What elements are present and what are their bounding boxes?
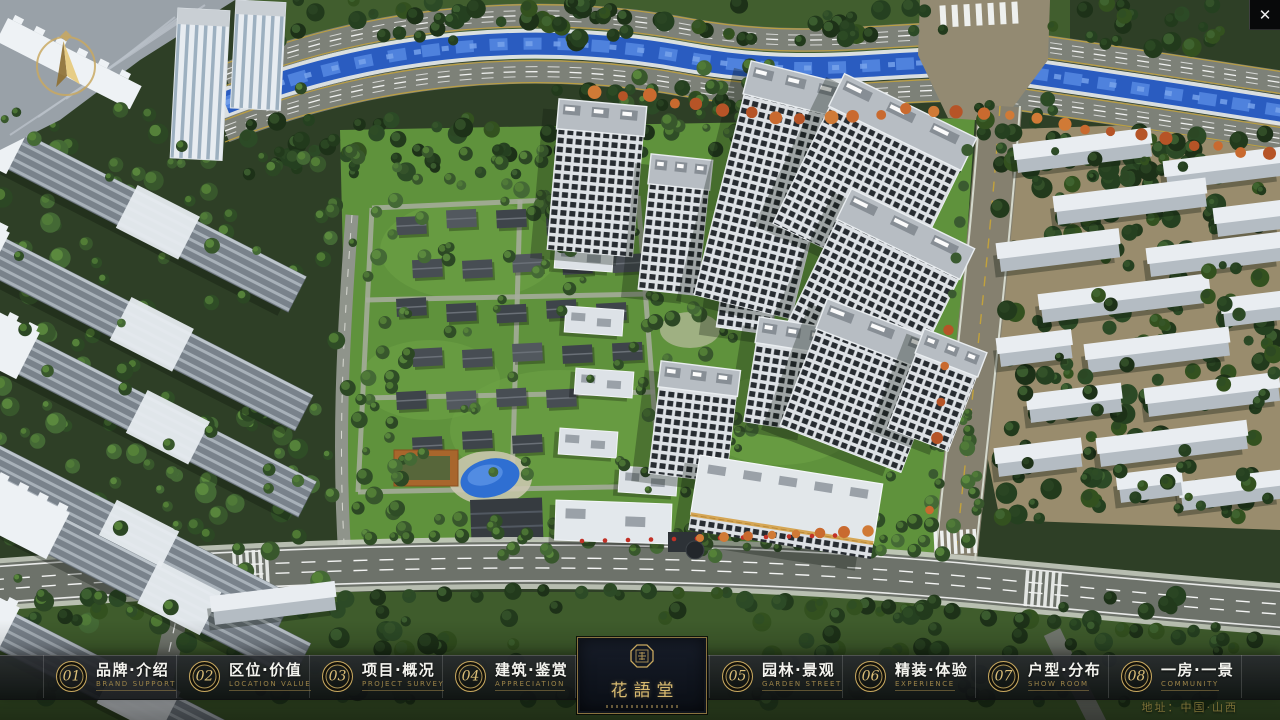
nav-item-number-badge: 08: [1121, 661, 1152, 692]
nav-item-number-badge: 04: [455, 661, 486, 692]
nav-item-architecture-appreciation[interactable]: 04建筑·鉴赏APPRECIATION: [442, 655, 575, 698]
close-button[interactable]: ✕: [1249, 0, 1280, 30]
nav-item-label-zh: 一房·一景: [1161, 663, 1234, 678]
nav-item-label-zh: 园林·景观: [762, 663, 835, 678]
presentation-screen: ✕ 01品牌·介绍BRAND SUPPORT02区位·价值LOCATION VA…: [0, 0, 1280, 720]
nav-item-number-badge: 05: [722, 661, 753, 692]
navbar-separator: [1241, 655, 1242, 698]
logo-caption: [606, 705, 678, 708]
nav-item-label-zh: 区位·价值: [229, 663, 302, 678]
nav-item-project-overview[interactable]: 03项目·概况PROJECT SURVEY: [309, 655, 442, 698]
masterplan-3d-view[interactable]: [0, 0, 1280, 720]
nav-item-label-en: COMMUNITY: [1161, 681, 1219, 691]
nav-item-interior-experience[interactable]: 06精装·体验EXPERIENCE: [842, 655, 975, 698]
address-text: 地址：中国·山西: [1142, 699, 1239, 715]
nav-item-label-en: PROJECT SURVEY: [362, 681, 444, 691]
nav-item-number-badge: 06: [855, 661, 886, 692]
nav-item-number-badge: 02: [189, 661, 220, 692]
nav-item-garden-landscape[interactable]: 05园林·景观GARDEN STREET: [709, 655, 842, 698]
nav-item-label-en: SHOW ROOM: [1028, 681, 1089, 691]
nav-item-location-value[interactable]: 02区位·价值LOCATION VALUE: [176, 655, 309, 698]
compass-icon: [30, 28, 102, 102]
nav-item-label-zh: 项目·概况: [362, 663, 435, 678]
nav-item-label-en: LOCATION VALUE: [229, 681, 311, 691]
nav-item-room-scene[interactable]: 08一房·一景COMMUNITY: [1108, 655, 1241, 698]
nav-item-label-zh: 建筑·鉴赏: [495, 663, 568, 678]
nav-item-label-zh: 精装·体验: [895, 663, 968, 678]
nav-item-number-badge: 03: [322, 661, 353, 692]
logo-text: 花語堂: [605, 676, 680, 701]
seal-icon: [629, 643, 655, 673]
nav-item-number-badge: 07: [988, 661, 1019, 692]
nav-item-number-badge: 01: [56, 661, 87, 692]
nav-item-label-en: GARDEN STREET: [762, 681, 842, 691]
nav-item-label-en: APPRECIATION: [495, 681, 565, 691]
nav-item-label-zh: 品牌·介绍: [96, 663, 169, 678]
close-icon: ✕: [1259, 6, 1272, 24]
logo-plaque[interactable]: 花語堂: [577, 637, 707, 714]
sales-center: [548, 500, 671, 549]
nav-item-label-zh: 户型·分布: [1028, 663, 1101, 678]
nav-item-brand-intro[interactable]: 01品牌·介绍BRAND SUPPORT: [43, 655, 176, 698]
navbar-separator: [575, 655, 576, 698]
nav-item-label-en: EXPERIENCE: [895, 681, 955, 691]
nav-item-floorplan-distribution[interactable]: 07户型·分布SHOW ROOM: [975, 655, 1108, 698]
nav-item-label-en: BRAND SUPPORT: [96, 681, 176, 691]
